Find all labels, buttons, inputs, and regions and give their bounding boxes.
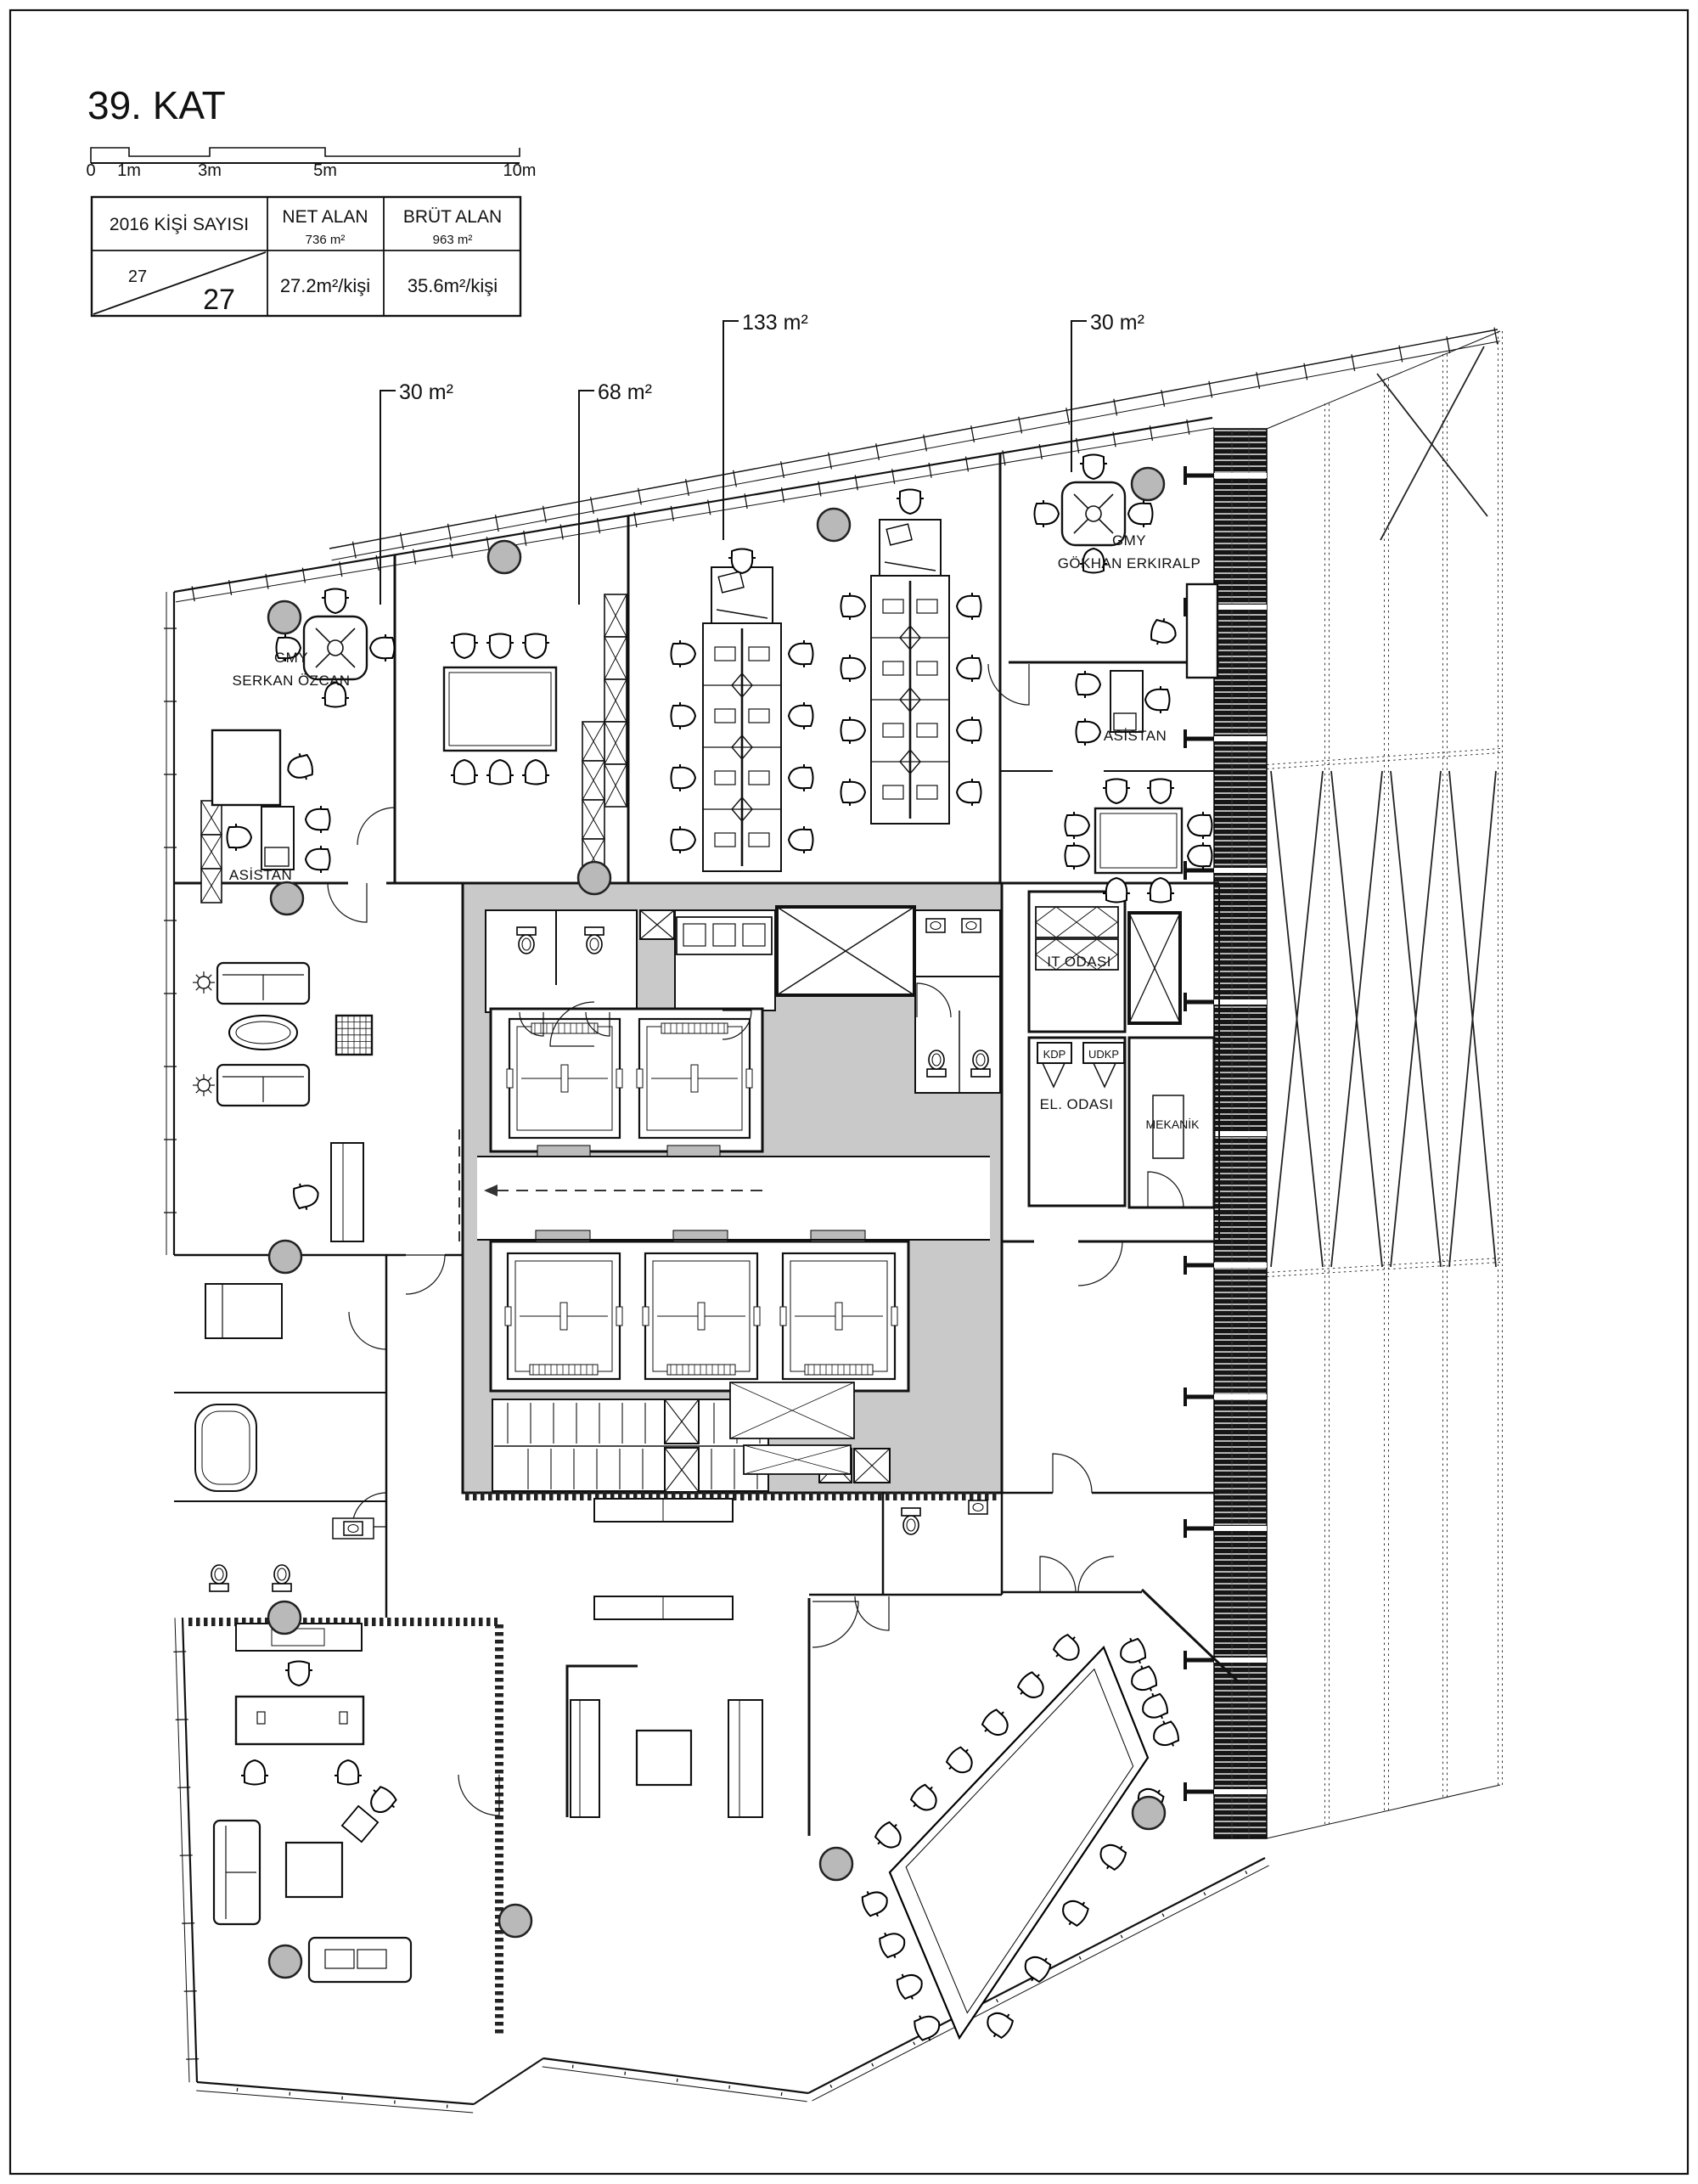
panel-label-udkp: UDKP: [1088, 1048, 1119, 1061]
structural-column: [578, 862, 610, 894]
structural-column: [271, 882, 303, 915]
room-label-asistan-left: ASİSTAN: [229, 867, 292, 883]
room-label-gmy-left-name: SERKAN ÖZCAN: [233, 673, 351, 689]
structural-column: [268, 1601, 301, 1634]
gross-area-value: 963 m²: [433, 233, 473, 247]
room-label-gmy-right-name: GÖKHAN ERKIRALP: [1058, 555, 1201, 571]
structural-column: [269, 1241, 301, 1273]
area-label-open-office: 133 m²: [742, 311, 808, 335]
area-summary-table: 2016 KİŞİ SAYISI NET ALAN 736 m² BRÜT AL…: [92, 197, 520, 316]
room-label-el: EL. ODASI: [1040, 1096, 1114, 1112]
scale-5m: 5m: [313, 161, 337, 180]
scale-1m: 1m: [117, 161, 141, 180]
net-area-value: 736 m²: [306, 233, 346, 247]
room-label-mekanik: MEKANİK: [1145, 1117, 1200, 1131]
room-label-gmy-left-title: GMY: [274, 650, 308, 666]
structural-column: [488, 541, 520, 573]
room-label-it: IT ODASI: [1047, 954, 1111, 970]
scale-3m: 3m: [198, 161, 222, 180]
structural-column: [820, 1848, 852, 1880]
floor-plan-drawing: 39. KAT 0 1m 3m 5m 10m 2016 KİŞİ SAYISI …: [0, 0, 1698, 2184]
room-label-asistan-right: ASİSTAN: [1104, 728, 1167, 744]
col-person-header: 2016 KİŞİ SAYISI: [110, 215, 249, 234]
gross-per-person: 35.6m²/kişi: [408, 275, 498, 296]
col-gross-header: BRÜT ALAN: [403, 207, 502, 227]
structural-column: [818, 509, 850, 541]
scale-10m: 10m: [503, 161, 537, 180]
structural-column: [268, 601, 301, 633]
person-count-top: 27: [128, 267, 147, 286]
scale-0: 0: [86, 161, 95, 180]
panel-label-kdp: KDP: [1043, 1048, 1066, 1061]
floor-title: 39. KAT: [87, 83, 226, 127]
area-label-office-left: 30 m²: [399, 380, 453, 404]
floor-plan-sheet: 39. KAT 0 1m 3m 5m 10m 2016 KİŞİ SAYISI …: [0, 0, 1698, 2184]
area-label-meeting: 68 m²: [598, 380, 652, 404]
structural-column: [499, 1905, 531, 1937]
person-count-bottom: 27: [203, 284, 235, 316]
area-label-office-right: 30 m²: [1090, 311, 1144, 335]
structural-column: [1133, 1797, 1165, 1829]
room-label-gmy-right-title: GMY: [1112, 532, 1146, 549]
structural-column: [269, 1945, 301, 1978]
structural-column: [1132, 468, 1164, 500]
col-net-header: NET ALAN: [282, 207, 368, 227]
net-per-person: 27.2m²/kişi: [280, 275, 370, 296]
